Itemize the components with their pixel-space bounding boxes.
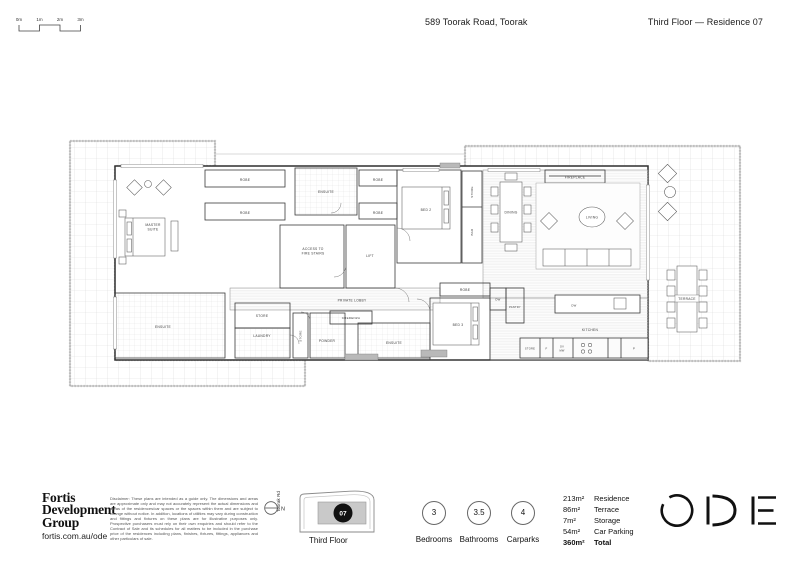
street-label: Toorak Rd bbox=[276, 491, 281, 512]
room-label-access-2: FIRE STAIRS bbox=[302, 252, 325, 256]
room-label-master-2: SUITE bbox=[148, 228, 160, 232]
keyplan: 07 bbox=[298, 488, 382, 536]
room-label-store: STORE bbox=[256, 314, 269, 318]
disclaimer-text: Disclaimer: These plans are intended as … bbox=[110, 496, 258, 541]
room-label-store: STORE bbox=[299, 330, 303, 342]
scale-bar-line bbox=[19, 25, 81, 31]
area-value: 7m² bbox=[563, 516, 594, 527]
area-value: 360m² bbox=[563, 538, 594, 549]
area-row-terrace: 86m² Terrace bbox=[563, 505, 634, 516]
unit-number: 07 bbox=[339, 511, 347, 518]
floor-plan: ROBE ROBE ENSUITE ROBE ROBE MASTER SUITE… bbox=[63, 125, 745, 397]
area-value: 213m² bbox=[563, 494, 594, 505]
keyplan-floor-label: Third Floor bbox=[309, 536, 348, 545]
room-label-living: LIVING bbox=[586, 215, 598, 219]
area-row-total: 360m² Total bbox=[563, 538, 634, 549]
area-value: 86m² bbox=[563, 505, 594, 516]
scale-tick-1: 1m bbox=[36, 17, 43, 22]
room-label-ensuite: ENSUITE bbox=[386, 341, 403, 345]
room-label-pantry: PANTRY bbox=[509, 305, 521, 309]
area-row-carparking: 54m² Car Parking bbox=[563, 527, 634, 538]
room-label-powder: POWDER bbox=[319, 339, 336, 343]
area-label: Residence bbox=[594, 494, 629, 505]
scale-bar: 0m 1m 2m 3m bbox=[16, 12, 91, 38]
room-label-credenza: CREDENZA bbox=[342, 316, 361, 320]
area-schedule: 213m² Residence 86m² Terrace 7m² Storage… bbox=[563, 494, 634, 549]
scale-tick-0: 0m bbox=[16, 17, 22, 22]
room-label-kitchen: KITCHEN bbox=[582, 328, 599, 332]
room-label-dw: DW bbox=[495, 298, 500, 302]
scale-tick-3: 3m bbox=[77, 17, 84, 22]
carparks-label: Carparks bbox=[493, 535, 553, 544]
oven-label: OV bbox=[560, 345, 564, 349]
room-label-laundry: LAUNDRY bbox=[253, 334, 271, 338]
address-title: 589 Toorak Road, Toorak bbox=[425, 17, 528, 27]
room-label-bar: BAR bbox=[470, 228, 474, 236]
scale-tick-2: 2m bbox=[57, 17, 64, 22]
room-label-master-1: MASTER bbox=[145, 223, 161, 227]
microwave-label: MW bbox=[559, 349, 564, 353]
area-row-storage: 7m² Storage bbox=[563, 516, 634, 527]
room-label-robe: ROBE bbox=[373, 178, 384, 182]
bathrooms-count-badge: 3.5 bbox=[467, 501, 491, 525]
fortis-logo: Fortis Development Group bbox=[42, 492, 116, 529]
fridge-label: F bbox=[546, 347, 548, 351]
room-label-private-lobby: PRIVATE LOBBY bbox=[338, 299, 367, 303]
area-value: 54m² bbox=[563, 527, 594, 538]
north-arrow-icon: N bbox=[263, 500, 287, 516]
room-label-dining: DINING bbox=[504, 211, 517, 215]
room-label-robe: ROBE bbox=[460, 288, 471, 292]
pantry-p-label: P bbox=[633, 347, 635, 351]
area-label: Car Parking bbox=[594, 527, 634, 538]
north-label: N bbox=[281, 506, 285, 512]
room-label-robe: ROBE bbox=[373, 211, 384, 215]
area-label: Storage bbox=[594, 516, 620, 527]
fortis-url-link[interactable]: fortis.com.au/ode bbox=[42, 531, 107, 541]
bench-store-label: STORE bbox=[525, 347, 535, 351]
page-title: Third Floor — Residence 07 bbox=[648, 17, 763, 27]
room-label-bed2: BED 2 bbox=[421, 208, 432, 212]
room-label-bed3: BED 3 bbox=[453, 323, 464, 327]
room-label-store: STORE bbox=[470, 186, 474, 198]
bedrooms-count-badge: 3 bbox=[422, 501, 446, 525]
room-label-ensuite: ENSUITE bbox=[318, 190, 335, 194]
room-label-robe: ROBE bbox=[240, 211, 251, 215]
room-label-terrace: TERRACE bbox=[678, 297, 696, 301]
fortis-logo-line3: Group bbox=[42, 517, 116, 529]
stat-carparks: 4 Carparks bbox=[493, 501, 553, 544]
room-label-ensuite: ENSUITE bbox=[155, 325, 172, 329]
room-label-fireplace: FIREPLACE bbox=[565, 176, 586, 180]
area-label: Total bbox=[594, 538, 611, 549]
ode-logo bbox=[658, 492, 783, 532]
room-label-lift: LIFT bbox=[366, 254, 374, 258]
island-dw-label: DW bbox=[571, 304, 576, 308]
room-label-robe: ROBE bbox=[240, 178, 251, 182]
area-row-residence: 213m² Residence bbox=[563, 494, 634, 505]
floor-plan-area: ROBE ROBE ENSUITE ROBE ROBE MASTER SUITE… bbox=[63, 125, 745, 397]
carparks-count-badge: 4 bbox=[511, 501, 535, 525]
area-label: Terrace bbox=[594, 505, 619, 516]
room-label-access-1: ACCESS TO bbox=[302, 247, 323, 251]
